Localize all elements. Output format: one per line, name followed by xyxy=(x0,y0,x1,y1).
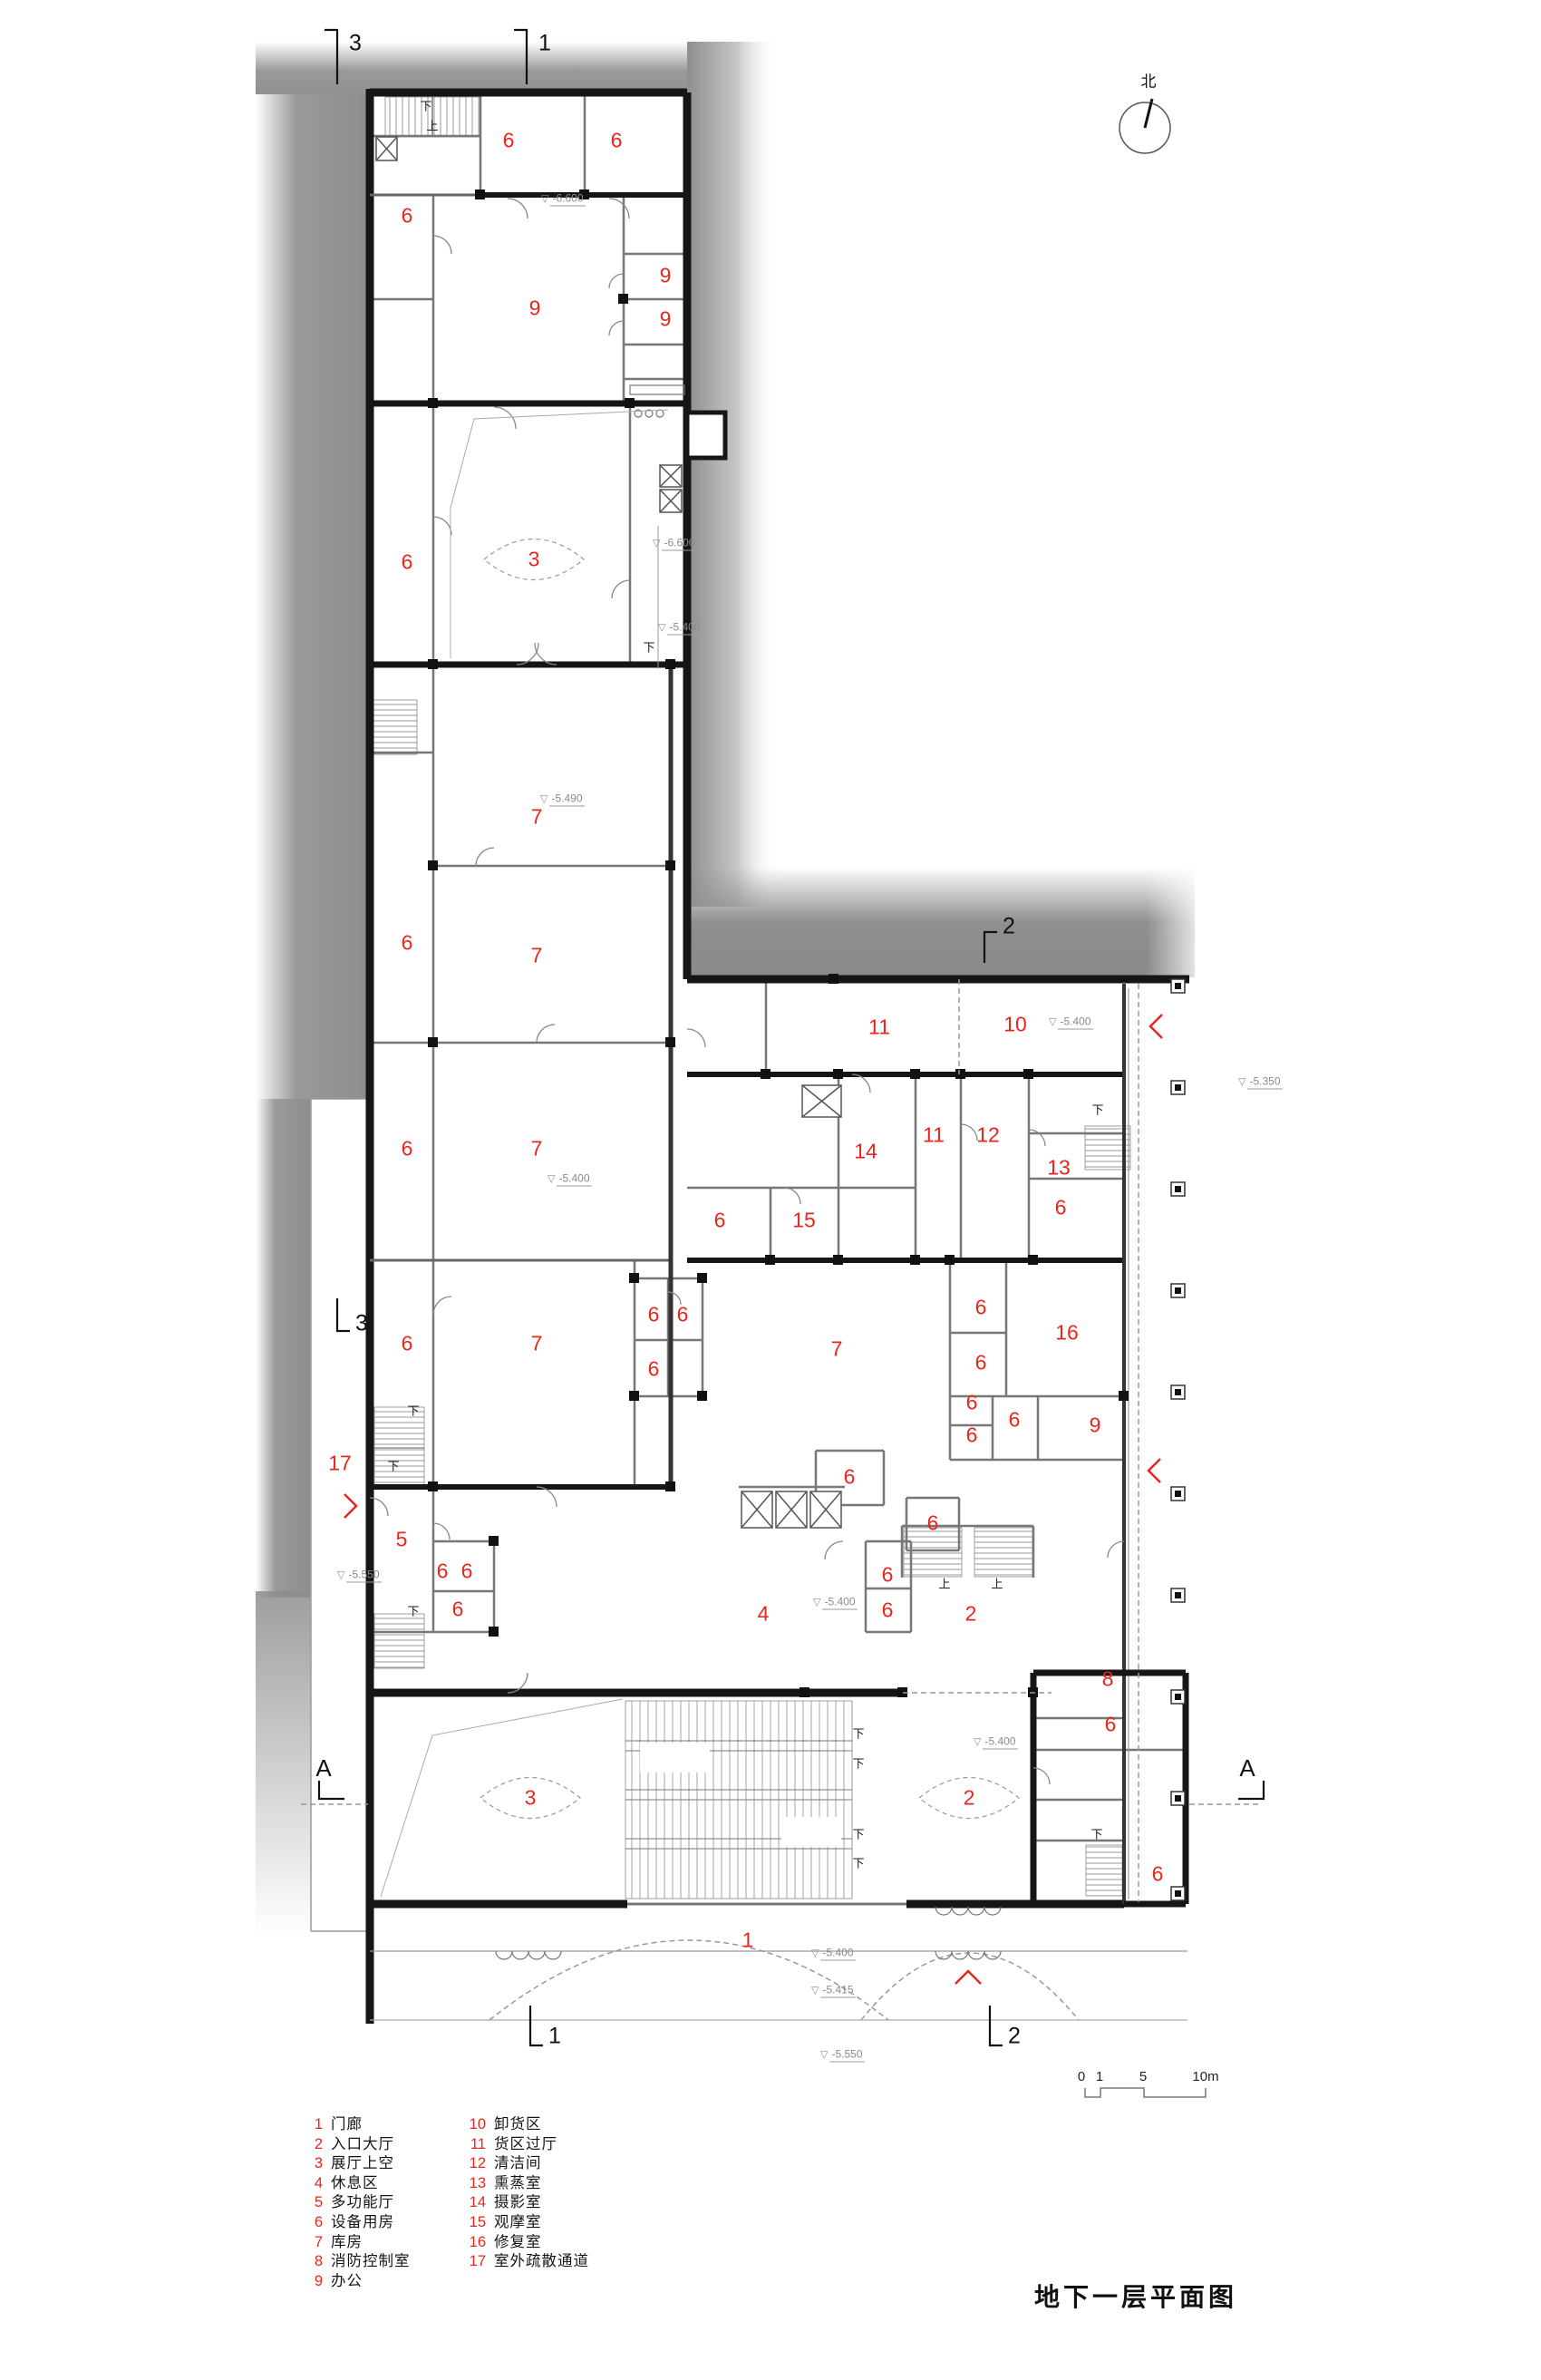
legend-item: 17室外疏散通道 xyxy=(462,2252,698,2272)
grand-stair-hatch xyxy=(625,1701,852,1899)
flow-arrow-west2-icon xyxy=(1148,1459,1160,1482)
legend-item-name: 室外疏散通道 xyxy=(494,2253,589,2269)
legend-item: 16修复室 xyxy=(462,2233,698,2253)
legend-item-number: 13 xyxy=(462,2174,486,2194)
legend-item-name: 熏蒸室 xyxy=(494,2175,542,2191)
legend-item: 11货区过厅 xyxy=(462,2135,698,2155)
legend-item: 10卸货区 xyxy=(462,2115,698,2135)
legend-item-number: 6 xyxy=(299,2213,323,2233)
legend-item: 9办公 xyxy=(299,2272,535,2292)
legend-right-column: 10卸货区11货区过厅12清洁间13熏蒸室14摄影室15观摩室16修复室17室外… xyxy=(462,2115,698,2272)
legend-item-number: 9 xyxy=(299,2272,323,2292)
floorplan-canvas: 6669996376711106714111213615667666761666… xyxy=(0,0,1541,2380)
legend-item-number: 15 xyxy=(462,2213,486,2233)
legend-item-number: 8 xyxy=(299,2252,323,2272)
legend-item-name: 入口大厅 xyxy=(331,2136,394,2152)
legend-item-name: 摄影室 xyxy=(494,2194,542,2210)
legend-item-number: 5 xyxy=(299,2193,323,2213)
legend-item-number: 12 xyxy=(462,2154,486,2174)
legend-item-number: 2 xyxy=(299,2135,323,2155)
scale-bar-line xyxy=(1085,2088,1206,2097)
legend-item-name: 观摩室 xyxy=(494,2214,542,2230)
legend-item-number: 1 xyxy=(299,2115,323,2135)
legend-item-name: 消防控制室 xyxy=(331,2253,411,2269)
north-label: 北 xyxy=(1141,74,1157,90)
legend-item: 13熏蒸室 xyxy=(462,2174,698,2194)
legend-item-name: 门廊 xyxy=(331,2116,363,2132)
legend-item-number: 14 xyxy=(462,2193,486,2213)
evacuation-corridor-edge xyxy=(311,1099,370,1931)
legend-item-number: 7 xyxy=(299,2233,323,2253)
legend-item-number: 17 xyxy=(462,2252,486,2272)
legend-item-name: 休息区 xyxy=(331,2175,379,2191)
legend-item-name: 设备用房 xyxy=(331,2214,394,2230)
legend-item-name: 卸货区 xyxy=(494,2116,542,2132)
legend-item: 12清洁间 xyxy=(462,2154,698,2174)
legend-item-number: 4 xyxy=(299,2174,323,2194)
legend-item-name: 办公 xyxy=(331,2273,363,2289)
legend-item-number: 11 xyxy=(462,2135,486,2155)
legend-item: 14摄影室 xyxy=(462,2193,698,2213)
gallery-skew-lines xyxy=(381,410,668,1897)
legend-item-number: 10 xyxy=(462,2115,486,2135)
legend-item-number: 16 xyxy=(462,2233,486,2253)
legend-item: 15观摩室 xyxy=(462,2213,698,2233)
legend-item-name: 修复室 xyxy=(494,2234,542,2250)
flow-arrow-north-icon xyxy=(955,1971,981,1984)
porch xyxy=(370,1907,1187,2020)
flow-arrow-west-icon xyxy=(1150,1015,1162,1038)
legend-item-number: 3 xyxy=(299,2154,323,2174)
legend-item-name: 多功能厅 xyxy=(331,2194,394,2210)
legend-item-name: 展厅上空 xyxy=(331,2155,394,2171)
flow-arrow-east-icon xyxy=(344,1494,356,1518)
north-arrow-icon xyxy=(1119,99,1170,153)
legend-item-name: 货区过厅 xyxy=(494,2136,557,2152)
drawing-title: 地下一层平面图 xyxy=(1034,2278,1237,2314)
floor-plan-drawing xyxy=(0,0,1541,2380)
legend-item-name: 清洁间 xyxy=(494,2155,542,2171)
legend-item-name: 库房 xyxy=(331,2234,363,2250)
